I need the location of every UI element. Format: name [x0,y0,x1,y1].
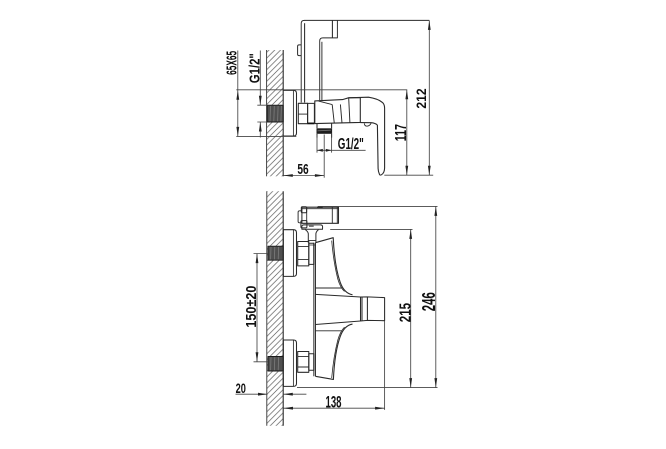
svg-text:G1/2": G1/2" [247,53,264,83]
svg-text:65X65: 65X65 [224,51,240,75]
svg-text:215: 215 [398,303,415,322]
svg-text:G1/2": G1/2" [338,136,364,153]
svg-text:138: 138 [326,393,342,411]
svg-text:117: 117 [393,124,410,141]
svg-text:20: 20 [236,381,246,396]
svg-text:246: 246 [419,292,439,311]
svg-text:150±20: 150±20 [244,286,260,328]
svg-text:56: 56 [297,161,308,178]
svg-text:212: 212 [413,88,429,108]
